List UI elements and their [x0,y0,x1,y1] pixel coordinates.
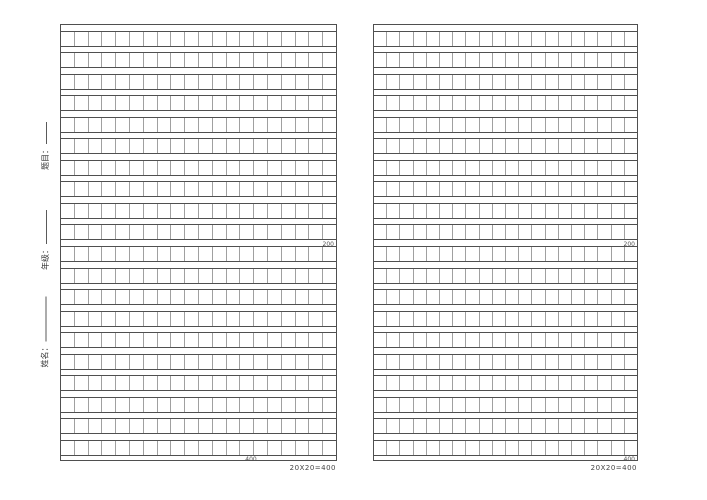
writing-cell [386,290,399,304]
writing-cell [571,139,584,153]
writing-cell [267,161,281,175]
writing-cell [308,96,322,110]
writing-cell [611,182,624,196]
writing-cell [115,204,129,218]
writing-cell [452,139,465,153]
writing-cell [115,441,129,455]
writing-cell [115,355,129,369]
writing-cell [295,441,309,455]
writing-cell [74,312,88,326]
writing-cell [479,419,492,433]
writing-cell [531,139,544,153]
writing-cell [253,247,267,261]
writing-cell [374,182,386,196]
writing-cell [143,204,157,218]
writing-cell [426,376,439,390]
writing-cell [74,161,88,175]
writing-cell [267,376,281,390]
writing-cell [426,225,439,239]
grid-row [61,305,336,327]
cell-strip [61,95,336,111]
writing-cell [597,139,610,153]
writing-cell [143,398,157,412]
writing-cell [531,118,544,132]
writing-cell [101,312,115,326]
grid-row [374,327,637,349]
writing-cell [308,441,322,455]
grid-row [374,219,637,241]
writing-cell [374,32,386,46]
writing-cell [322,139,336,153]
writing-cell [571,312,584,326]
writing-cell [531,96,544,110]
writing-cell [505,225,518,239]
writing-cell [558,118,571,132]
writing-cell [226,290,240,304]
writing-cell [624,398,637,412]
writing-cell [115,118,129,132]
writing-cell [597,355,610,369]
writing-cell [531,32,544,46]
writing-cell [170,247,184,261]
writing-cell [226,355,240,369]
grid-row [374,111,637,133]
writing-cell [88,398,102,412]
writing-cell [322,32,336,46]
writing-cell [61,333,74,347]
writing-cell [518,96,531,110]
writing-cell [267,333,281,347]
writing-cell [386,333,399,347]
writing-cell [295,333,309,347]
writing-cell [61,139,74,153]
writing-cell [267,312,281,326]
writing-cell [157,355,171,369]
cell-strip [61,224,336,240]
writing-cell [611,290,624,304]
writing-cell [505,96,518,110]
writing-cell [413,398,426,412]
writing-cell [624,290,637,304]
writing-cell [624,32,637,46]
writing-cell [308,204,322,218]
writing-cell [88,290,102,304]
writing-cell [308,53,322,67]
writing-cell [212,75,226,89]
writing-cell [531,269,544,283]
writing-cell [170,96,184,110]
writing-cell [115,32,129,46]
writing-cell [452,182,465,196]
writing-cell [308,32,322,46]
writing-cell [597,96,610,110]
field-name-underline [46,297,47,342]
writing-cell [88,96,102,110]
writing-cell [322,225,336,239]
grid-row [374,284,637,306]
writing-cell [226,204,240,218]
writing-cell [184,118,198,132]
writing-cell [115,376,129,390]
writing-cell [465,32,478,46]
writing-cell [143,312,157,326]
writing-cell [505,333,518,347]
writing-cell [281,247,295,261]
grid-row [374,90,637,112]
writing-cell [611,398,624,412]
writing-cell [88,53,102,67]
writing-cell [505,204,518,218]
writing-cell [597,419,610,433]
writing-cell [426,247,439,261]
writing-cell [281,441,295,455]
writing-cell [170,419,184,433]
writing-cell [198,225,212,239]
writing-cell [267,441,281,455]
writing-cell [571,204,584,218]
cell-strip [61,181,336,197]
writing-cell [88,32,102,46]
writing-cell [597,398,610,412]
field-name-label: 姓名： [41,344,51,368]
writing-cell [253,441,267,455]
writing-cell [399,161,412,175]
writing-cell [239,419,253,433]
cell-strip [374,117,637,133]
writing-cell [212,290,226,304]
writing-cell [212,398,226,412]
writing-cell [212,204,226,218]
writing-cell [413,139,426,153]
writing-cell [115,269,129,283]
writing-cell [253,225,267,239]
writing-cell [584,182,597,196]
writing-cell [413,290,426,304]
writing-cell [505,290,518,304]
writing-cell [88,333,102,347]
writing-cell [531,441,544,455]
writing-cell [452,419,465,433]
writing-cell [281,96,295,110]
writing-cell [101,376,115,390]
writing-cell [184,53,198,67]
cell-strip [61,397,336,413]
cell-strip [374,289,637,305]
writing-cell [212,96,226,110]
writing-cell [308,290,322,304]
writing-cell [399,441,412,455]
writing-cell [226,247,240,261]
writing-cell [74,204,88,218]
grid-row [61,176,336,198]
field-name: 姓名： [40,297,52,368]
writing-cell [61,182,74,196]
writing-cell [374,419,386,433]
writing-cell [322,398,336,412]
grid-row [61,262,336,284]
writing-cell [492,53,505,67]
writing-cell [558,204,571,218]
writing-cell [492,32,505,46]
writing-cell [479,182,492,196]
field-title-underline [46,122,47,144]
writing-cell [452,225,465,239]
writing-cell [129,53,143,67]
writing-cell [281,161,295,175]
grid-row [61,197,336,219]
writing-cell [611,247,624,261]
writing-cell [308,355,322,369]
writing-cell [295,96,309,110]
writing-cell [322,161,336,175]
writing-cell [558,53,571,67]
writing-cell [545,225,558,239]
writing-cell [374,139,386,153]
writing-cell [129,204,143,218]
cell-strip [61,203,336,219]
writing-cell [198,441,212,455]
cell-strip [374,246,637,262]
writing-cell [531,225,544,239]
writing-cell [267,355,281,369]
writing-cell [143,419,157,433]
writing-cell [61,419,74,433]
writing-cell [74,53,88,67]
writing-cell [597,247,610,261]
writing-cell [143,441,157,455]
cell-strip [61,289,336,305]
writing-cell [492,139,505,153]
grid-row [374,240,637,262]
writing-cell [253,139,267,153]
writing-cell [157,118,171,132]
writing-cell [558,376,571,390]
writing-cell [253,53,267,67]
grid-row [61,370,336,392]
writing-cell [439,32,452,46]
writing-cell [584,225,597,239]
writing-cell [129,247,143,261]
writing-cell [413,161,426,175]
writing-cell [465,225,478,239]
writing-cell [492,161,505,175]
writing-cell [295,225,309,239]
writing-cell [611,333,624,347]
writing-cell [253,398,267,412]
writing-cell [157,269,171,283]
writing-cell [505,53,518,67]
writing-cell [322,182,336,196]
writing-cell [571,290,584,304]
writing-cell [386,118,399,132]
writing-cell [115,398,129,412]
writing-grid [374,25,637,456]
field-grade: 年级： [40,210,52,270]
writing-cell [61,32,74,46]
writing-cell [584,333,597,347]
writing-cell [170,75,184,89]
writing-cell [439,53,452,67]
writing-cell [184,290,198,304]
writing-cell [545,290,558,304]
writing-cell [505,398,518,412]
writing-cell [558,333,571,347]
writing-cell [308,312,322,326]
writing-cell [531,312,544,326]
writing-cell [624,161,637,175]
writing-cell [101,269,115,283]
writing-cell [505,182,518,196]
writing-cell [465,290,478,304]
writing-cell [518,312,531,326]
writing-cell [170,355,184,369]
writing-cell [426,53,439,67]
writing-cell [295,398,309,412]
writing-cell [101,247,115,261]
writing-cell [143,161,157,175]
writing-cell [386,182,399,196]
writing-cell [426,441,439,455]
writing-cell [624,441,637,455]
writing-cell [281,269,295,283]
writing-cell [157,53,171,67]
writing-cell [295,290,309,304]
writing-cell [518,247,531,261]
writing-cell [212,355,226,369]
grid-row [61,327,336,349]
writing-cell [115,225,129,239]
writing-cell [198,118,212,132]
writing-cell [295,312,309,326]
writing-cell [101,161,115,175]
writing-cell [281,355,295,369]
writing-cell [492,225,505,239]
writing-cell [308,118,322,132]
writing-cell [584,398,597,412]
writing-cell [267,204,281,218]
cell-strip [374,160,637,176]
cell-strip [374,332,637,348]
grid-row [61,240,336,262]
writing-cell [170,182,184,196]
writing-cell [157,312,171,326]
writing-cell [115,247,129,261]
writing-cell [386,355,399,369]
writing-cell [545,419,558,433]
writing-cell [518,441,531,455]
writing-cell [308,333,322,347]
writing-cell [571,398,584,412]
grid-row [61,47,336,69]
writing-cell [584,355,597,369]
writing-cell [545,269,558,283]
writing-cell [74,139,88,153]
writing-cell [267,269,281,283]
writing-cell [281,312,295,326]
writing-cell [61,53,74,67]
cell-strip [374,268,637,284]
writing-cell [531,182,544,196]
writing-cell [413,312,426,326]
writing-cell [399,75,412,89]
writing-cell [61,118,74,132]
writing-cell [212,118,226,132]
writing-cell [584,312,597,326]
writing-cell [101,32,115,46]
writing-cell [226,398,240,412]
writing-cell [184,161,198,175]
writing-cell [413,247,426,261]
field-title-label: 题目： [41,146,51,170]
writing-cell [281,419,295,433]
writing-cell [239,376,253,390]
writing-cell [322,441,336,455]
writing-cell [226,441,240,455]
writing-cell [413,441,426,455]
grid-row [374,197,637,219]
writing-cell [129,355,143,369]
writing-cell [571,225,584,239]
writing-cell [170,53,184,67]
writing-cell [545,312,558,326]
writing-cell [611,96,624,110]
writing-cell [584,32,597,46]
writing-cell [465,333,478,347]
writing-cell [74,419,88,433]
writing-cell [439,333,452,347]
writing-cell [426,355,439,369]
writing-cell [545,441,558,455]
writing-cell [611,441,624,455]
writing-cell [157,161,171,175]
writing-cell [143,376,157,390]
writing-cell [212,441,226,455]
writing-cell [374,118,386,132]
writing-cell [101,182,115,196]
grid-row [374,47,637,69]
cell-strip [374,181,637,197]
writing-cell [413,118,426,132]
cell-strip [374,418,637,434]
writing-cell [184,355,198,369]
writing-cell [239,32,253,46]
writing-cell [386,398,399,412]
writing-cell [212,269,226,283]
writing-cell [624,118,637,132]
writing-cell [492,398,505,412]
writing-cell [465,139,478,153]
cell-strip [374,224,637,240]
cell-strip [61,375,336,391]
writing-cell [426,32,439,46]
grid-row [374,391,637,413]
writing-cell [129,269,143,283]
writing-cell [571,419,584,433]
writing-cell [479,247,492,261]
writing-cell [399,398,412,412]
writing-cell [492,441,505,455]
writing-cell [88,355,102,369]
writing-cell [531,290,544,304]
writing-cell [239,269,253,283]
writing-cell [518,53,531,67]
writing-cell [239,441,253,455]
cell-strip [374,74,637,90]
writing-cell [253,75,267,89]
writing-cell [308,398,322,412]
writing-cell [295,376,309,390]
writing-cell [184,333,198,347]
